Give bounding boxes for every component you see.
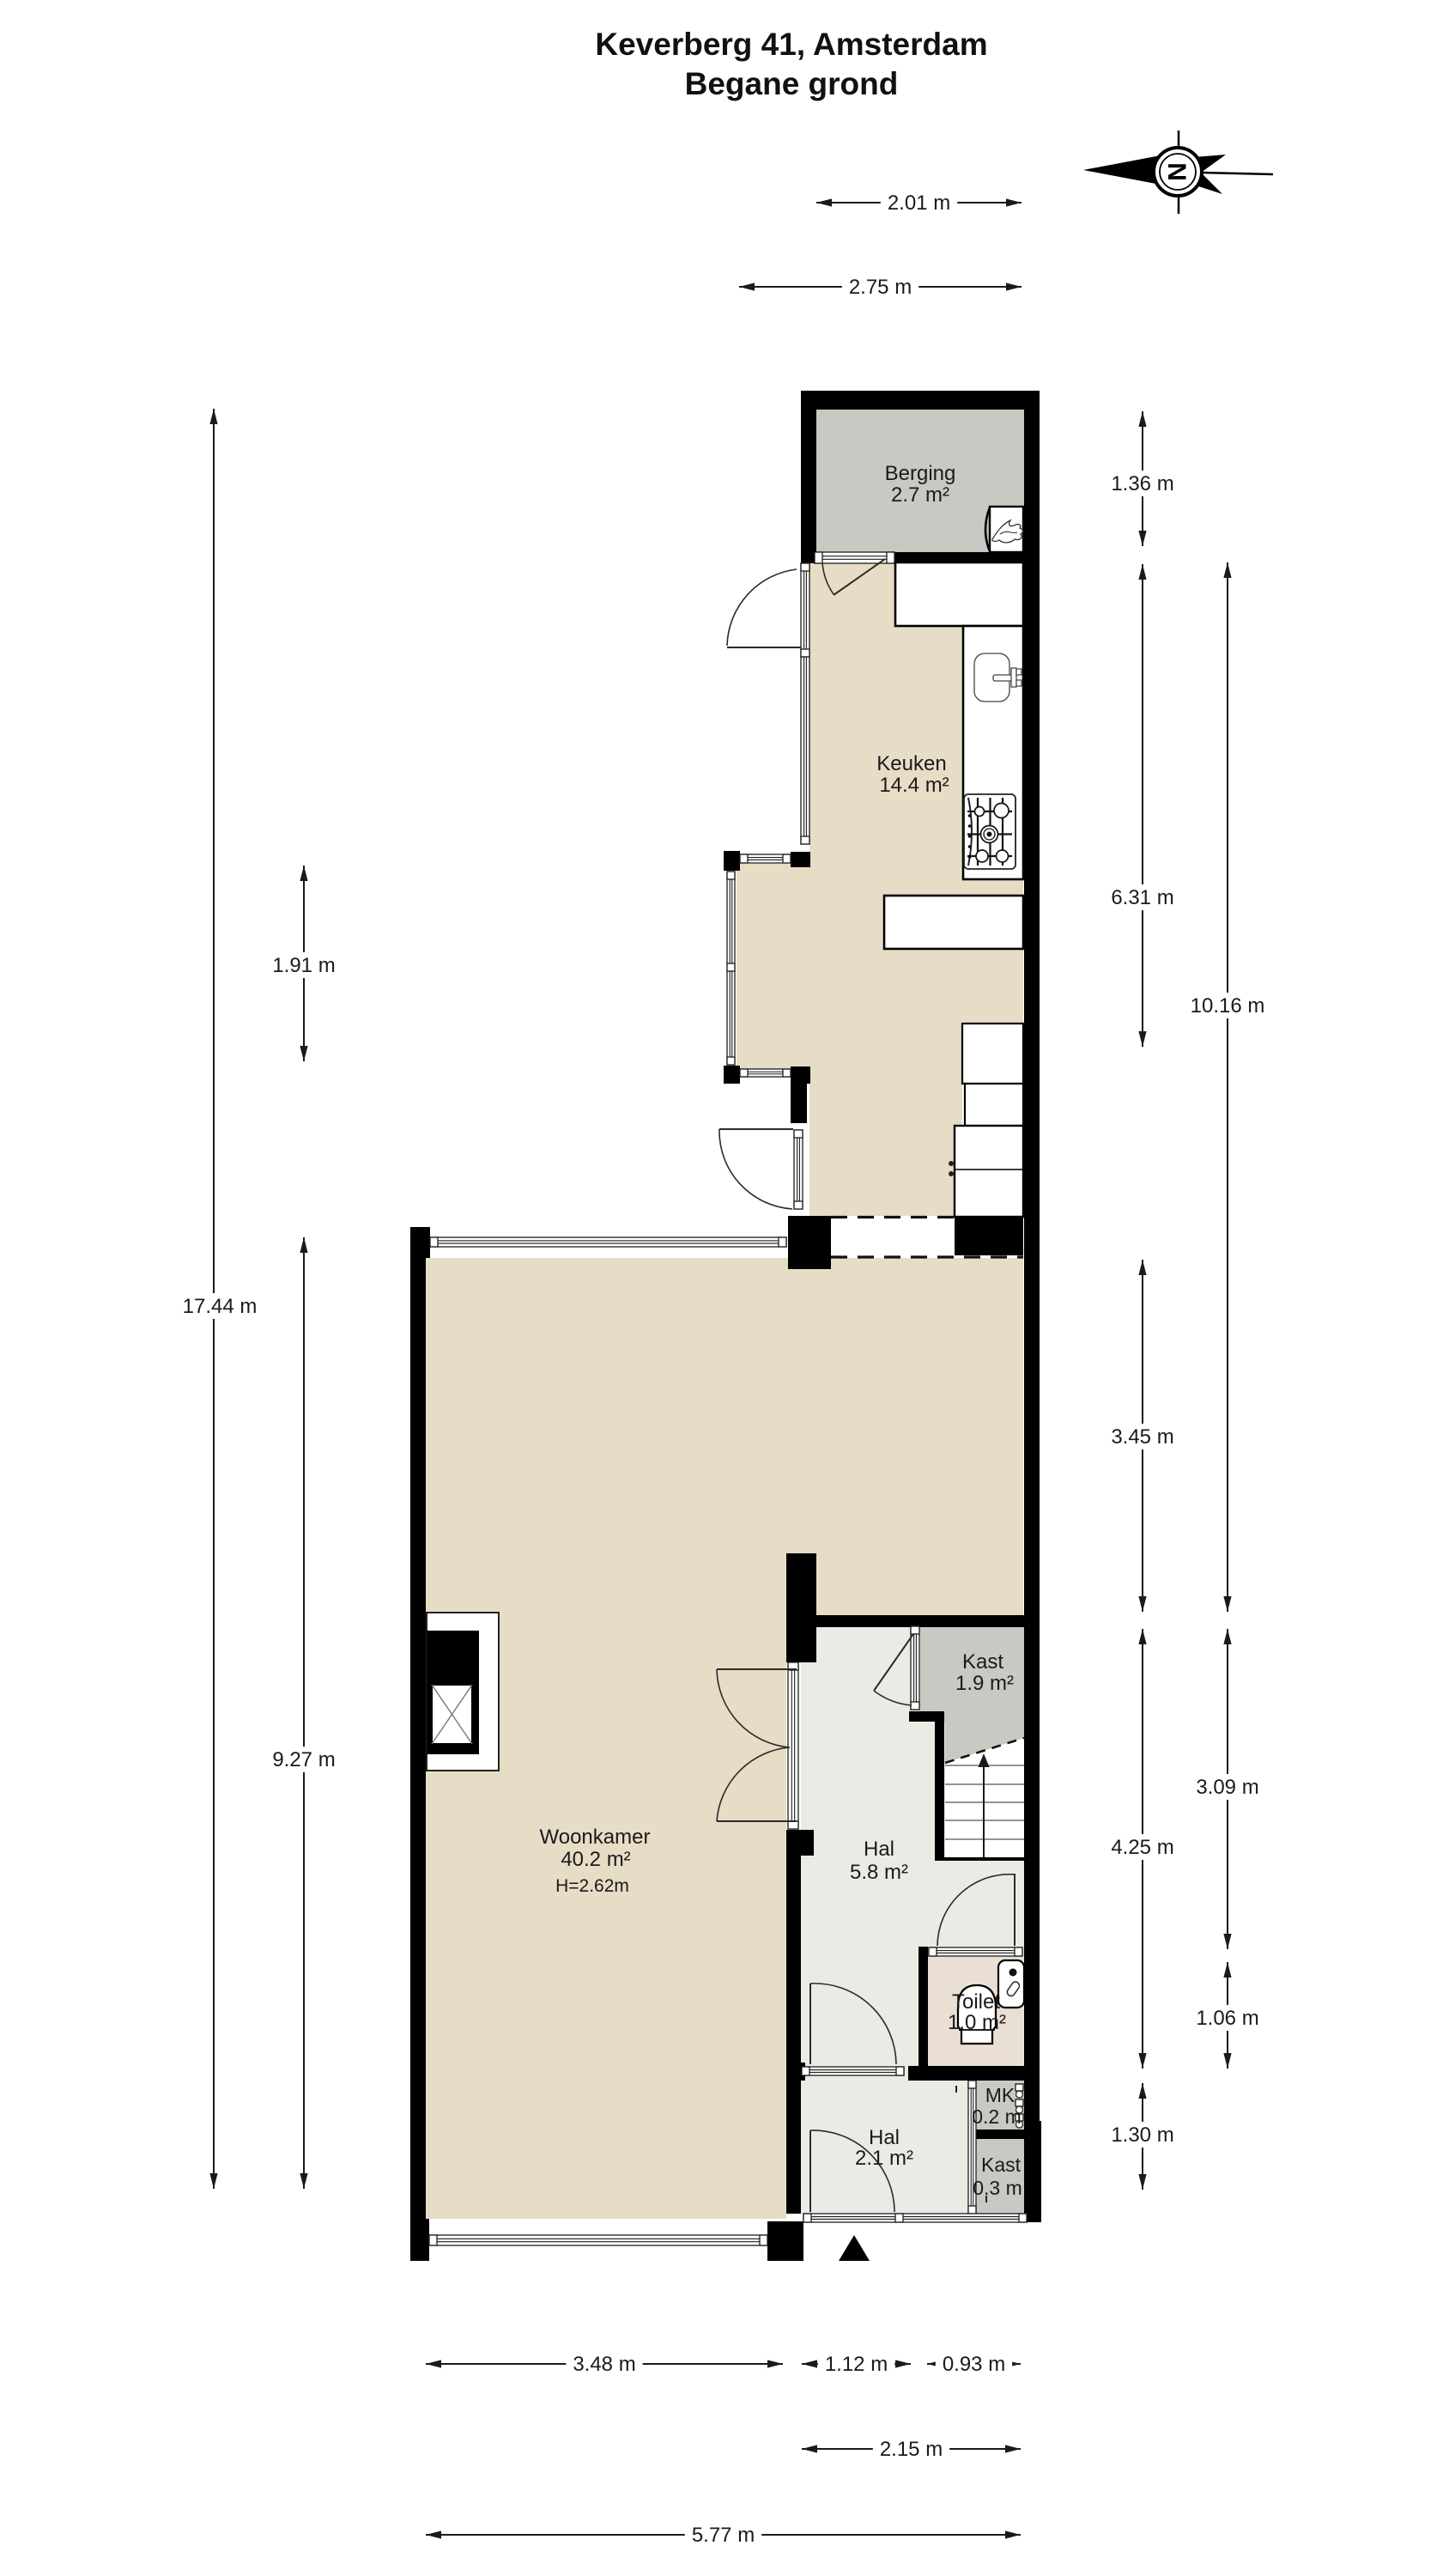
svg-text:1.30 m: 1.30 m xyxy=(1111,2123,1173,2147)
svg-text:N: N xyxy=(1164,162,1192,181)
svg-text:Woonkamer: Woonkamer xyxy=(540,1826,651,1849)
svg-text:3.09 m: 3.09 m xyxy=(1196,1776,1258,1799)
svg-text:10.16 m: 10.16 m xyxy=(1191,994,1265,1018)
svg-text:5.8 m²: 5.8 m² xyxy=(850,1861,908,1884)
svg-text:1.91 m: 1.91 m xyxy=(272,954,335,977)
svg-text:6.31 m: 6.31 m xyxy=(1111,886,1173,909)
svg-text:0.3 m: 0.3 m xyxy=(973,2177,1022,2199)
svg-text:Hal: Hal xyxy=(869,2126,900,2149)
svg-text:1.36 m: 1.36 m xyxy=(1111,472,1173,495)
svg-text:0.93 m: 0.93 m xyxy=(943,2353,1005,2376)
svg-text:Toilet: Toilet xyxy=(952,1990,1000,2014)
svg-text:Begane grond: Begane grond xyxy=(685,66,899,101)
svg-text:MK: MK xyxy=(985,2084,1016,2106)
svg-text:0.2 m: 0.2 m xyxy=(972,2105,1022,2128)
svg-text:Hal: Hal xyxy=(864,1838,894,1861)
svg-text:40.2 m²: 40.2 m² xyxy=(561,1848,630,1871)
svg-text:2.1 m²: 2.1 m² xyxy=(855,2147,913,2170)
svg-text:3.45 m: 3.45 m xyxy=(1111,1425,1173,1449)
svg-text:1.06 m: 1.06 m xyxy=(1196,2007,1258,2030)
svg-text:14.4 m²: 14.4 m² xyxy=(879,774,949,797)
svg-text:2.15 m: 2.15 m xyxy=(880,2438,943,2461)
svg-text:17.44 m: 17.44 m xyxy=(183,1295,258,1318)
svg-text:1.9 m²: 1.9 m² xyxy=(955,1672,1014,1695)
svg-text:2.7 m²: 2.7 m² xyxy=(891,483,949,507)
svg-text:9.27 m: 9.27 m xyxy=(272,1748,335,1771)
svg-text:Keverberg 41, Amsterdam: Keverberg 41, Amsterdam xyxy=(595,27,987,62)
svg-text:4.25 m: 4.25 m xyxy=(1111,1836,1173,1859)
svg-text:H=2.62m: H=2.62m xyxy=(555,1876,629,1896)
svg-text:2.75 m: 2.75 m xyxy=(849,276,912,299)
svg-text:2.01 m: 2.01 m xyxy=(888,191,950,215)
svg-text:Keuken: Keuken xyxy=(876,752,946,775)
svg-text:5.77 m: 5.77 m xyxy=(692,2524,755,2547)
svg-text:Kast: Kast xyxy=(981,2154,1022,2176)
svg-text:1.0 m²: 1.0 m² xyxy=(948,2011,1006,2034)
svg-text:Kast: Kast xyxy=(962,1650,1003,1674)
svg-text:1.12 m: 1.12 m xyxy=(825,2353,888,2376)
svg-text:3.48 m: 3.48 m xyxy=(573,2353,635,2376)
svg-text:Berging: Berging xyxy=(885,462,956,485)
